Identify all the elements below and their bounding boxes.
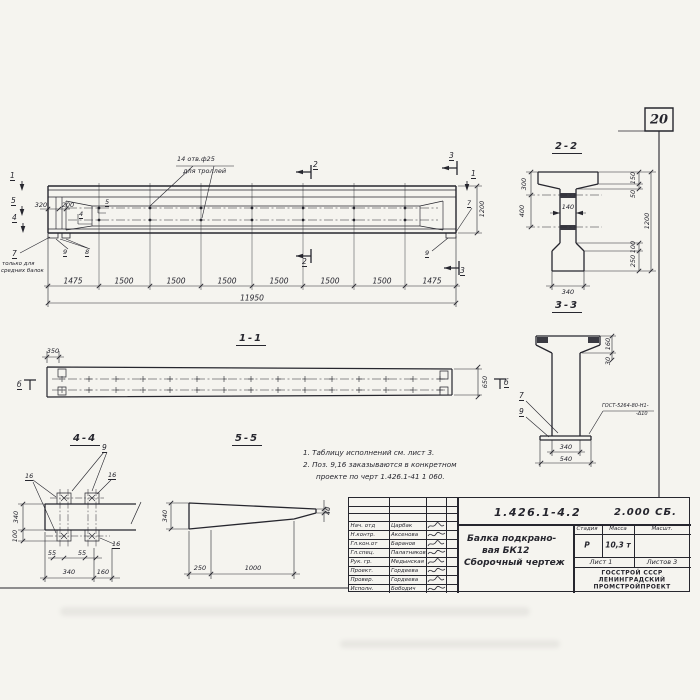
dim-350: 350 (47, 348, 59, 355)
signer-role: Н.контр. (351, 532, 376, 538)
signature-scribble (427, 531, 446, 539)
signer-role: Провер. (351, 577, 374, 583)
mass-value: 10,3 т (605, 541, 630, 550)
drawing-sheet: 14 отв.ф25 для троллей 1 5 4 1 2 2 3 3 7… (0, 0, 700, 700)
section-mark-2-top: 2 (313, 161, 318, 170)
left-note-line2: средних балок (1, 269, 44, 275)
scan-smudge (340, 640, 560, 648)
scan-smudge (60, 607, 530, 616)
dim-1200-section: 1200 (644, 213, 651, 230)
dim-150: 150 (630, 172, 637, 184)
dim-segment-8: 1475 (422, 277, 441, 285)
tb-line (602, 524, 603, 557)
doc-code: 2.000 СБ. (614, 507, 677, 518)
tb-line (573, 567, 691, 568)
doc-title-line3: Сборочный чертеж (464, 558, 565, 568)
pos-label-7-right: 7 (467, 200, 471, 208)
section-2-2-title: 2-2 (552, 141, 582, 154)
dim-250: 250 (630, 255, 637, 267)
dim-300: 300 (521, 178, 528, 190)
section-3-3-title: 3-3 (552, 300, 582, 313)
dim-1200-elevation: 1200 (479, 201, 486, 218)
dim-340-s44: 340 (63, 569, 75, 576)
dim-650: 650 (482, 376, 489, 388)
dim-segment-5: 1500 (269, 277, 288, 285)
pos-label-8: 8 (85, 249, 89, 257)
signer-name: Царбак (391, 523, 412, 529)
dim-55-b: 55 (78, 550, 86, 557)
doc-title-line1: Балка подкрано- (467, 534, 556, 544)
tb-line (634, 524, 635, 567)
tb-line (457, 498, 459, 593)
signer-name: Аксенова (391, 532, 418, 538)
pos-label-16-a: 16 (25, 473, 33, 481)
mark-b-left: б (17, 381, 22, 390)
col-stage-header: Стадия (576, 526, 597, 532)
dim-140: 140 (562, 204, 574, 211)
main-elevation-lines (20, 161, 482, 307)
weld-note-line2: -Δ10 (636, 412, 648, 417)
dim-340-s55: 340 (162, 510, 169, 522)
dim-540: 540 (560, 456, 572, 463)
dim-segment-6: 1500 (320, 277, 339, 285)
tb-line (349, 506, 457, 507)
sheets-total: Листов 3 (647, 558, 677, 566)
signer-role: Гл.кон.от (351, 541, 378, 547)
view-mark-4-left: 4 (12, 214, 17, 223)
pos-label-16-b: 16 (108, 472, 116, 480)
signature-scribble (427, 522, 446, 530)
dim-40: 40 (325, 507, 332, 515)
org-line1: ГОССТРОЙ СССР (601, 570, 662, 577)
section-4-4-lines (18, 452, 141, 582)
title-block: 1.426.1-4.2 2.000 СБ. Балка подкрано- ва… (348, 497, 690, 592)
section-4-4-title: 4-4 (70, 433, 100, 446)
tb-line (573, 534, 691, 535)
pos-label-5: 5 (105, 199, 109, 207)
holes-note-line2: для троллей (183, 168, 226, 175)
col-scale-header: Масшт. (651, 526, 672, 532)
dim-segment-4: 1500 (217, 277, 236, 285)
pos-label-9-s33: 9 (519, 408, 524, 417)
section-mark-2-bottom: 2 (302, 258, 307, 267)
signature-scribble (427, 576, 446, 584)
stage-value: Р (584, 541, 590, 550)
drawing-linework (0, 0, 700, 700)
signer-role: Нач. отд (351, 523, 376, 529)
signer-role: Гл.спец. (351, 550, 375, 556)
dim-200: 200 (62, 202, 74, 209)
dim-50: 50 (630, 190, 637, 198)
page-number: 20 (650, 113, 668, 128)
signer-role: Проект. (351, 568, 374, 574)
sheet-number: Лист 1 (590, 558, 613, 566)
view-mark-1-right: 1 (471, 170, 476, 179)
section-1-1-lines (24, 351, 506, 397)
dim-55-a: 55 (48, 550, 56, 557)
signature-scribble (427, 558, 446, 566)
dim-segment-1: 1475 (63, 277, 82, 285)
signature-scribble (427, 540, 446, 548)
signer-role: Исполн. (351, 586, 374, 592)
dim-250-s55: 250 (194, 565, 206, 572)
pos-label-7-left: 7 (12, 250, 17, 259)
signer-name: Медынская (391, 559, 424, 565)
dim-100-s44: 100 (12, 530, 19, 542)
doc-number: 1.426.1-4.2 (494, 506, 581, 519)
dim-segment-2: 1500 (114, 277, 133, 285)
dim-320: 320 (35, 202, 47, 209)
note-line-3: проекте по черт 1.426.1-41 1 060. (316, 472, 445, 481)
dim-1000: 1000 (245, 565, 262, 572)
mark-b-right: б (504, 379, 509, 388)
dim-400: 400 (519, 205, 526, 217)
pos-label-9-s44: 9 (102, 444, 107, 453)
signer-name: Бободич (391, 586, 416, 592)
signature-scribble (427, 549, 446, 557)
dim-segment-3: 1500 (166, 277, 185, 285)
dim-340-vert-s44: 340 (13, 511, 20, 523)
holes-note-line1: 14 отв.ф25 (177, 156, 215, 163)
section-5-5-title: 5-5 (232, 433, 262, 446)
signer-name: Баранов (391, 541, 415, 547)
signer-name: Гордеева (391, 577, 418, 583)
dim-total-length: 11950 (240, 294, 264, 302)
pos-label-9-right: 9 (425, 250, 429, 258)
section-1-1-title: 1-1 (236, 333, 266, 346)
pos-label-7-s33: 7 (519, 392, 524, 401)
dim-segment-7: 1500 (372, 277, 391, 285)
note-line-2: 2. Поз. 9,16 заказываются в конкретном (303, 460, 457, 469)
pos-label-9-left: 9 (63, 249, 67, 257)
dim-160-s44: 160 (97, 569, 109, 576)
signature-scribble (427, 585, 446, 593)
tb-line (349, 513, 457, 514)
section-mark-3-top: 3 (449, 152, 454, 161)
dim-160: 160 (605, 338, 612, 350)
org-line2: ЛЕНИНГРАДСКИЙ (599, 577, 666, 584)
signer-name: Палатников (391, 550, 426, 556)
dim-30: 30 (605, 357, 612, 365)
signature-scribble (427, 567, 446, 575)
dim-340-s22: 340 (562, 289, 574, 296)
view-mark-1-left: 1 (10, 172, 15, 181)
signer-name: Гордеева (391, 568, 418, 574)
weld-note-line1: ГОСТ-5264-80-Н1- (602, 404, 649, 409)
signer-role: Рук. гр. (351, 559, 373, 565)
left-note-line1: только для (2, 262, 34, 268)
view-mark-5-left: 5 (11, 197, 16, 206)
org-line3: ПРОМСТРОЙПРОЕКТ (593, 584, 670, 591)
pos-label-4: 4 (79, 211, 83, 219)
pos-label-16-c: 16 (112, 541, 120, 549)
dim-340-s33: 340 (560, 444, 572, 451)
section-mark-3-bottom: 3 (460, 267, 465, 276)
section-3-3-lines (526, 336, 654, 467)
doc-title-line2: вая БК12 (482, 546, 529, 556)
col-mass-header: Масса (609, 526, 627, 532)
note-line-1: 1. Таблицу исполнений см. лист 3. (303, 448, 434, 457)
dim-100: 100 (630, 241, 637, 253)
